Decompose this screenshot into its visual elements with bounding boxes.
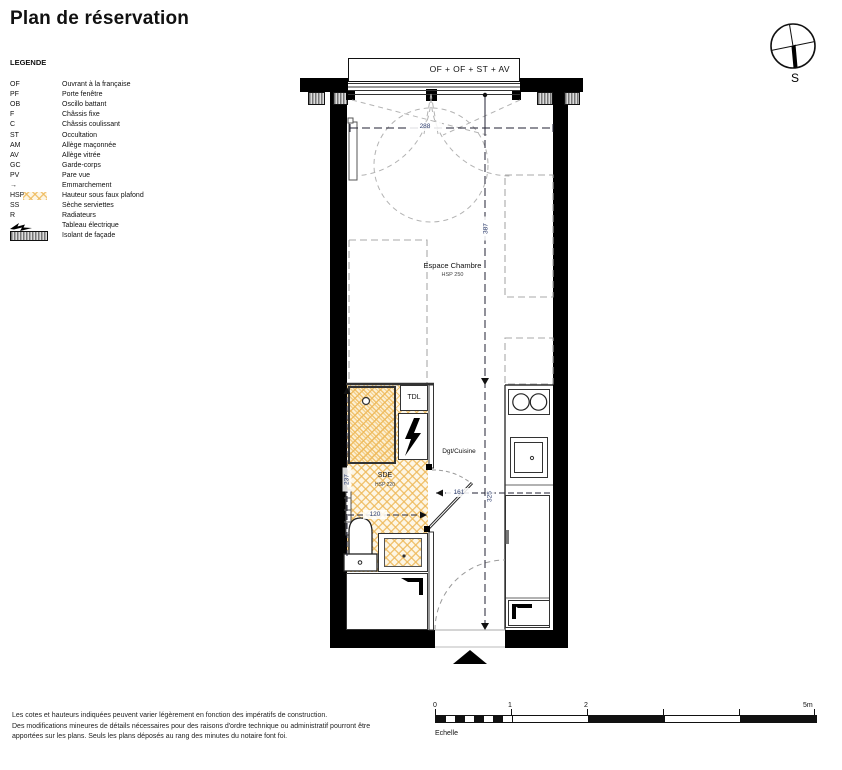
- legend-item-ss: SSSèche serviettes: [10, 201, 240, 211]
- floor-plan: OF + OF + ST + AV TDL: [300, 58, 590, 673]
- compass-south-label: S: [791, 71, 799, 85]
- legend-item-tableau-electrique: Tableau électrique: [10, 221, 240, 231]
- room-label-dgt-cuisine: Dgt/Cuisine: [428, 448, 490, 455]
- entry-closet-right: [508, 600, 550, 626]
- compass-icon: S: [766, 16, 824, 88]
- footer-line-3: apportées sur les plans. Seuls les plans…: [12, 732, 432, 743]
- footer-line-2: Des modifications mineures de détails né…: [12, 722, 432, 733]
- dimension-sde-width: 120: [363, 510, 387, 519]
- shower-tray: [348, 386, 396, 464]
- scale-bar: 0 1 2 5m Echelle: [435, 702, 817, 748]
- wall-right: [553, 78, 568, 640]
- wall-left: [330, 78, 347, 648]
- dimension-window-width: 288: [408, 122, 442, 131]
- arrow-icon: →: [10, 181, 62, 191]
- window-mullion-icon: [346, 90, 355, 100]
- wall-top-right: [520, 78, 583, 92]
- legend-item-c: CChâssis coulissant: [10, 120, 240, 130]
- legend-item-am: AMAllège maçonnée: [10, 141, 240, 151]
- dimension-chambre-length: 387: [482, 217, 491, 241]
- page-title: Plan de réservation: [10, 8, 189, 30]
- hsp-hatch-swatch-icon: [23, 192, 47, 200]
- room-label-chambre: Espace Chambre: [400, 261, 505, 270]
- tdl-closet: TDL: [400, 385, 428, 411]
- room-hsp-sde: HSP 220: [360, 482, 410, 488]
- facade-insulation-swatch-icon: [10, 231, 48, 241]
- kitchen-unit-handle: [505, 530, 509, 544]
- legend-item-of: OFOuvrant à la française: [10, 80, 240, 90]
- electrical-panel-arrow-icon: [10, 222, 32, 231]
- facade-insulation-block-icon: [564, 92, 580, 105]
- window-mullion-icon: [426, 89, 437, 101]
- scale-label-1: 1: [508, 702, 512, 709]
- legend-item-st: STOccultation: [10, 130, 240, 140]
- scale-caption: Echelle: [435, 730, 458, 737]
- vanity-basin: [384, 538, 422, 567]
- scale-label-0: 0: [433, 702, 437, 709]
- footer-line-1: Les cotes et hauteurs indiquées peuvent …: [12, 711, 432, 722]
- footer-disclaimer: Les cotes et hauteurs indiquées peuvent …: [12, 711, 432, 743]
- scale-ruler: [435, 715, 817, 723]
- wall-bottom-left: [330, 630, 435, 648]
- facade-insulation-block-icon: [537, 92, 553, 105]
- scale-label-5m: 5m: [803, 702, 813, 709]
- room-hsp-chambre: HSP 250: [400, 272, 505, 278]
- legend-item-av: AVAllège vitrée: [10, 151, 240, 161]
- legend-item-hsp: HSP Hauteur sous faux plafond: [10, 191, 240, 201]
- legend-heading: LEGENDE: [10, 58, 46, 67]
- window-type-label: OF + OF + ST + AV: [348, 58, 520, 82]
- legend-item-emmarchement: →Emmarchement: [10, 181, 240, 191]
- dimension-sde-length: 237: [343, 468, 352, 492]
- legend-item-isolant: Isolant de façade: [10, 231, 240, 241]
- dimension-dgt-length: 325: [486, 485, 495, 509]
- cooktop: [508, 389, 550, 415]
- legend-item-gc: GCGarde-corps: [10, 161, 240, 171]
- legend-item-r: RRadiateurs: [10, 211, 240, 221]
- dimension-dgt-width: 161: [446, 488, 472, 497]
- facade-insulation-block-icon: [308, 92, 325, 105]
- entry-closet-left: [346, 573, 428, 630]
- legend-item-pv: PVPare vue: [10, 171, 240, 181]
- scale-label-2: 2: [584, 702, 588, 709]
- kitchen-sink-basin: [514, 442, 543, 473]
- electrical-panel-box: [398, 413, 428, 460]
- legend-item-ob: OBOscillo battant: [10, 100, 240, 110]
- room-label-sde: SDE: [360, 472, 410, 479]
- legend-item-f: FChâssis fixe: [10, 110, 240, 120]
- legend-item-pf: PFPorte fenêtre: [10, 90, 240, 100]
- window-mullion-icon: [512, 90, 521, 100]
- wall-bottom-right: [505, 630, 568, 648]
- legend: OFOuvrant à la française PFPorte fenêtre…: [10, 80, 240, 242]
